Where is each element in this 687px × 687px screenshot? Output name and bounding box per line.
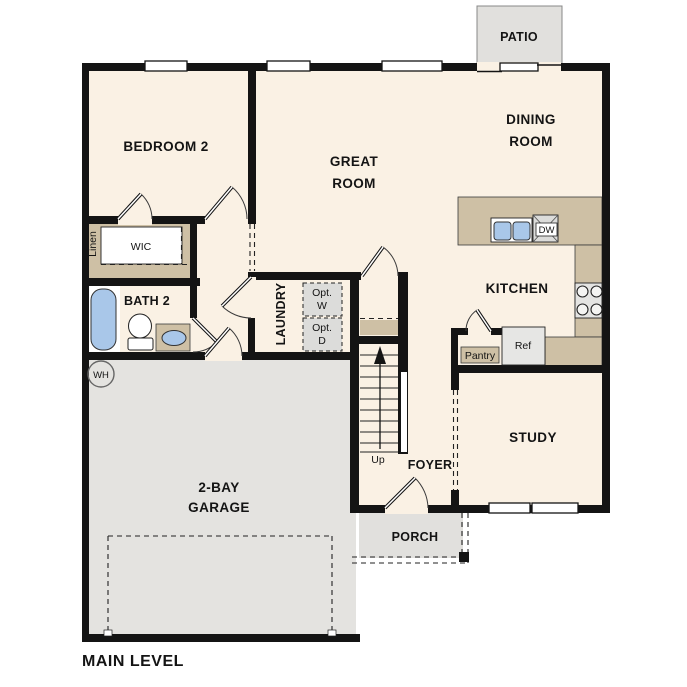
wall-study-left-b [451,490,459,510]
room-label-great-room-1: GREAT [330,154,379,169]
garage-area [86,356,356,637]
room-label-garage-2: GARAGE [188,500,250,515]
opening-bedroom-door [205,215,248,225]
room-label-dining-room-1: DINING [506,112,556,127]
window [532,503,578,513]
room-label-bath2: BATH 2 [124,294,170,308]
room-label-foyer: FOYER [408,458,453,472]
room-label-garage-1: 2-BAY [198,480,239,495]
fixture-label-dw: DW [539,225,555,236]
wall-stair-bar [352,336,408,344]
room-label-great-room-2: ROOM [332,176,376,191]
window [145,61,187,71]
room-label-laundry: LAUNDRY [274,282,288,345]
patio-slider-panel [500,63,538,71]
room-label-dining-room-2: ROOM [509,134,553,149]
optional-washer-label-1: Opt. [312,287,332,299]
opening-wic-door [118,215,152,225]
kitchen-bottom-counter [545,337,602,366]
wall-bedroom-divider [248,63,256,223]
kitchen-sink-basin [513,222,530,240]
optional-dryer-label-2: D [318,335,326,347]
room-label-patio: PATIO [500,30,538,44]
window [489,503,530,513]
wall-study-left-a [451,365,459,390]
optional-washer-label-2: W [317,300,327,312]
wall-study-top [451,365,610,373]
stair-landing-strip [360,320,398,335]
wall-laundry-top [255,272,360,280]
wall-garage-bottom [82,634,360,642]
bathtub-icon [91,289,116,350]
fixture-label-wh: WH [93,370,109,381]
stove-icon [575,283,602,318]
room-label-porch: PORCH [392,530,439,544]
stairs-label-up: Up [371,454,385,466]
opening-front-door [385,504,428,514]
toilet-icon [129,314,152,338]
optional-dryer-label-1: Opt. [312,322,332,334]
window [382,61,442,71]
closet-label-wic: WIC [131,241,152,253]
window [267,61,310,71]
wall-garage-right [350,272,359,513]
porch-post [459,552,469,562]
opening-laundry-door [247,277,256,318]
toilet-tank [128,338,153,350]
room-label-kitchen: KITCHEN [486,281,549,296]
wall-outer-right [602,63,610,513]
wall-hall-left [190,216,197,318]
wall-pantry-top-b [491,328,502,335]
fixture-label-ref: Ref [515,340,531,352]
closet-label-linen: Linen [87,231,99,257]
plan-title: MAIN LEVEL [82,653,184,670]
kitchen-sink-basin [494,222,511,240]
opening-garage-door [205,351,242,361]
vanity-sink-icon [162,331,186,346]
room-label-study: STUDY [509,430,557,445]
stair-handrail [401,372,407,452]
room-label-bedroom2: BEDROOM 2 [123,139,208,154]
floor-plan: BEDROOM 2 GREAT ROOM DINING ROOM KITCHEN… [0,0,687,687]
wall-wic-bottom [82,278,200,286]
closet-label-pantry: Pantry [465,350,496,362]
